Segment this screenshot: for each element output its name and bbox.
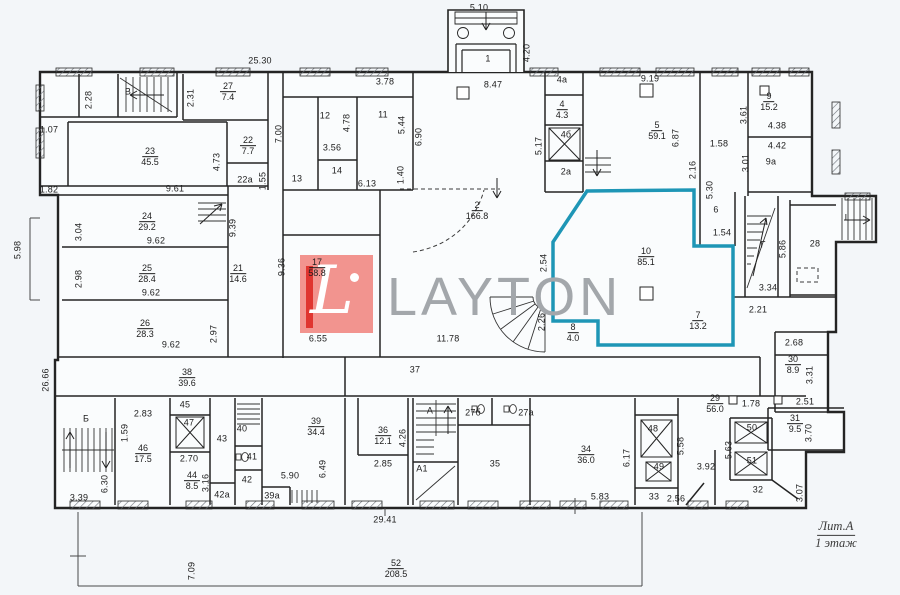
- dim-label: 4.26: [399, 429, 408, 447]
- dim-label: 6.55: [309, 335, 327, 344]
- dim-label: I: [845, 214, 848, 223]
- dim-label: 3.31: [806, 366, 815, 384]
- layton-logo-text: LAYTON: [387, 266, 622, 328]
- dim-label: В: [125, 88, 131, 97]
- room-label-44: 448.5: [184, 470, 200, 492]
- room-label-34: 3436.0: [577, 444, 595, 466]
- dim-label: 9.36: [278, 258, 287, 276]
- dim-label: 45: [180, 401, 190, 410]
- dim-label: 47: [184, 419, 194, 428]
- room-label-4: 44.3: [556, 99, 569, 121]
- dim-label: 42: [242, 476, 252, 485]
- dim-label: 43: [217, 435, 227, 444]
- room-label-7: 713.2: [689, 310, 707, 332]
- dim-label: 9.39: [229, 219, 238, 237]
- plan-caption: Лит.А 1 этаж: [815, 519, 857, 551]
- dim-label: 3.04: [75, 223, 84, 241]
- dim-label: 3.16: [202, 474, 211, 492]
- dim-label: 5.10: [470, 4, 488, 13]
- dim-label: 5.44: [398, 116, 407, 134]
- dim-label: 51: [747, 457, 757, 466]
- dim-label: 9.62: [147, 237, 165, 246]
- dim-label: 1.40: [397, 166, 406, 184]
- dim-label: 2.28: [85, 91, 94, 109]
- floor-label: 1 этаж: [815, 536, 857, 550]
- dim-label: 14: [332, 167, 342, 176]
- dim-label: 1.55: [259, 172, 268, 190]
- dim-label: 28: [810, 240, 820, 249]
- room-label-9: 915.2: [760, 91, 778, 113]
- dim-label: 3.61: [740, 106, 749, 124]
- dim-label: 5.90: [281, 472, 299, 481]
- dim-label: 27б: [465, 409, 481, 418]
- room-label-30: 308.9: [785, 354, 801, 376]
- dim-label: 2.21: [749, 306, 767, 315]
- room-label-17: 1758.8: [308, 257, 326, 279]
- dim-label: 2.98: [75, 270, 84, 288]
- dim-label: 48: [648, 425, 658, 434]
- dim-label: 6.30: [101, 475, 110, 493]
- dim-label: 2.68: [785, 339, 803, 348]
- room-label-29: 2956.0: [706, 393, 724, 415]
- room-label-22: 227.7: [240, 135, 256, 157]
- dim-label: 9.19: [641, 75, 659, 84]
- dim-label: 2.97: [210, 325, 219, 343]
- dim-label: 33: [649, 493, 659, 502]
- floor-plan: L LAYTON Лит.А 1 этаж 277.42345.5227.744…: [0, 0, 900, 595]
- dim-label: 4.20: [523, 44, 532, 62]
- dim-label: 1.78: [742, 400, 760, 409]
- dim-label: 2.85: [374, 460, 392, 469]
- dim-label: 42а: [214, 491, 230, 500]
- dim-label: 6.13: [358, 180, 376, 189]
- dim-label: 3.78: [376, 78, 394, 87]
- dim-label: 9.62: [142, 289, 160, 298]
- dim-label: 5.58: [677, 437, 686, 455]
- room-label-38: 3839.6: [178, 367, 196, 389]
- room-label-24: 2429.2: [138, 211, 156, 233]
- dim-label: 7.09: [188, 562, 197, 580]
- dim-label: 4.42: [768, 142, 786, 151]
- dim-label: 2а: [561, 168, 571, 177]
- dim-label: 2.83: [134, 410, 152, 419]
- dim-label: Б: [83, 415, 89, 424]
- logo-dot-icon: [350, 273, 359, 282]
- dim-label: А: [427, 407, 433, 416]
- dim-label: 8.47: [484, 81, 502, 90]
- dim-label: 13: [292, 175, 302, 184]
- dim-label: 41: [247, 453, 257, 462]
- dim-label: 1.58: [710, 140, 728, 149]
- dim-label: 32: [753, 486, 763, 495]
- dim-label: 4б: [561, 131, 572, 140]
- dim-label: 7.00: [275, 125, 284, 143]
- dim-label: 9.61: [166, 185, 184, 194]
- room-label-36: 3612.1: [374, 425, 392, 447]
- dim-label: 3.92: [697, 463, 715, 472]
- dim-label: 22а: [237, 176, 253, 185]
- dim-label: 6.49: [319, 460, 328, 478]
- dim-label: 6.17: [623, 449, 632, 467]
- room-label-31: 319.5: [787, 413, 803, 435]
- dim-label: 6.87: [672, 129, 681, 147]
- dim-label: 3.39: [70, 494, 88, 503]
- dim-label: 1: [485, 55, 490, 64]
- room-label-5: 559.1: [648, 120, 666, 142]
- dim-label: 4.78: [343, 114, 352, 132]
- room-label-23: 2345.5: [141, 146, 159, 168]
- dim-label: 5.63: [725, 441, 734, 459]
- room-label-52: 52208.5: [385, 558, 408, 580]
- dim-label: 1.59: [121, 424, 130, 442]
- dim-label: 5.83: [591, 493, 609, 502]
- dim-label: 5.86: [779, 240, 788, 258]
- dim-label: 9а: [766, 158, 776, 167]
- room-label-25: 2528.4: [138, 263, 156, 285]
- dim-label: 3.07: [796, 484, 805, 502]
- litera-label: Лит.А: [817, 519, 856, 536]
- dim-label: 2.51: [796, 398, 814, 407]
- dim-label: 2.26: [538, 313, 547, 331]
- dim-label: 3.34: [759, 284, 777, 293]
- dim-label: 27а: [518, 409, 534, 418]
- dim-label: 2.16: [689, 161, 698, 179]
- dim-label: 39а: [264, 492, 280, 501]
- room-label-21: 2114.6: [229, 263, 247, 285]
- room-label-46: 4617.5: [134, 443, 152, 465]
- dim-label: 4а: [557, 76, 567, 85]
- dim-label: 6: [713, 206, 718, 215]
- room-label-39: 3934.4: [307, 416, 325, 438]
- dim-label: 2.70: [180, 455, 198, 464]
- dim-label: 4.38: [768, 122, 786, 131]
- dim-label: 3.01: [742, 154, 751, 172]
- dim-label: 5.30: [706, 181, 715, 199]
- dim-label: 37: [410, 366, 420, 375]
- room-label-26: 2628.3: [136, 318, 154, 340]
- dim-label: 49: [654, 463, 664, 472]
- room-label-10: 1085.1: [637, 246, 655, 268]
- room-label-2: 2166.8: [466, 200, 489, 222]
- dim-label: 12: [320, 112, 330, 121]
- dim-label: 25.30: [248, 57, 272, 66]
- dim-label: Г: [760, 241, 765, 250]
- dim-label: 2.56: [667, 495, 685, 504]
- dim-label: 11: [378, 111, 388, 120]
- dim-label: 29.41: [373, 516, 397, 525]
- dim-label: 6.90: [415, 128, 424, 146]
- room-label-27: 277.4: [220, 81, 236, 103]
- dim-label: А1: [416, 465, 427, 474]
- dim-label: 5.98: [14, 241, 23, 259]
- dim-label: 2.54: [540, 254, 549, 272]
- dim-label: 26.66: [42, 368, 51, 392]
- dim-label: 3.56: [323, 144, 341, 153]
- dim-label: 1.07: [40, 126, 58, 135]
- dim-label: 11.78: [437, 335, 460, 344]
- dim-label: 50: [747, 424, 757, 433]
- dim-label: 40: [237, 425, 247, 434]
- dim-label: 5.17: [535, 137, 544, 155]
- dim-label: 3.70: [805, 424, 814, 442]
- dim-label: 1.82: [40, 186, 58, 195]
- room-label-8: 84.0: [567, 322, 580, 344]
- dim-label: 4.73: [213, 153, 222, 171]
- dim-label: 1.54: [713, 229, 731, 238]
- dim-label: 35: [490, 460, 500, 469]
- dim-label: 9.62: [162, 341, 180, 350]
- dim-label: 2.31: [187, 89, 196, 107]
